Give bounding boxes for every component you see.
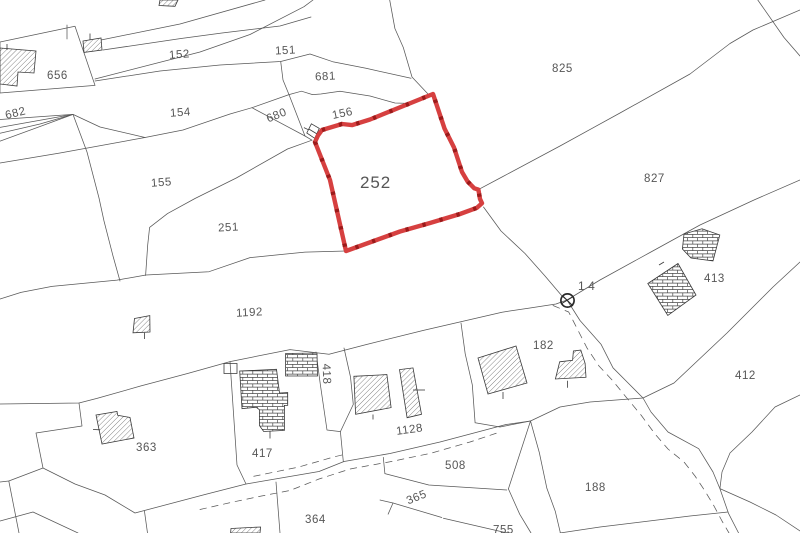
svg-text:417: 417 — [252, 448, 273, 460]
svg-text:413: 413 — [704, 273, 725, 285]
svg-text:681: 681 — [315, 70, 336, 83]
svg-text:155: 155 — [151, 176, 173, 189]
svg-text:755: 755 — [493, 525, 514, 533]
svg-text:154: 154 — [170, 106, 192, 119]
svg-text:418: 418 — [320, 363, 333, 384]
svg-text:251: 251 — [218, 221, 239, 234]
svg-text:182: 182 — [533, 340, 554, 352]
svg-text:508: 508 — [445, 460, 466, 472]
svg-text:827: 827 — [644, 173, 665, 185]
svg-text:656: 656 — [47, 70, 68, 82]
svg-text:412: 412 — [735, 370, 756, 382]
svg-text:152: 152 — [169, 48, 191, 61]
svg-text:363: 363 — [136, 442, 157, 454]
svg-text:252: 252 — [360, 173, 391, 192]
svg-text:1192: 1192 — [236, 306, 264, 319]
svg-text:151: 151 — [275, 44, 296, 57]
svg-text:188: 188 — [585, 482, 606, 494]
svg-text:825: 825 — [552, 63, 573, 75]
svg-text:364: 364 — [305, 514, 326, 526]
svg-text:14: 14 — [578, 279, 598, 293]
